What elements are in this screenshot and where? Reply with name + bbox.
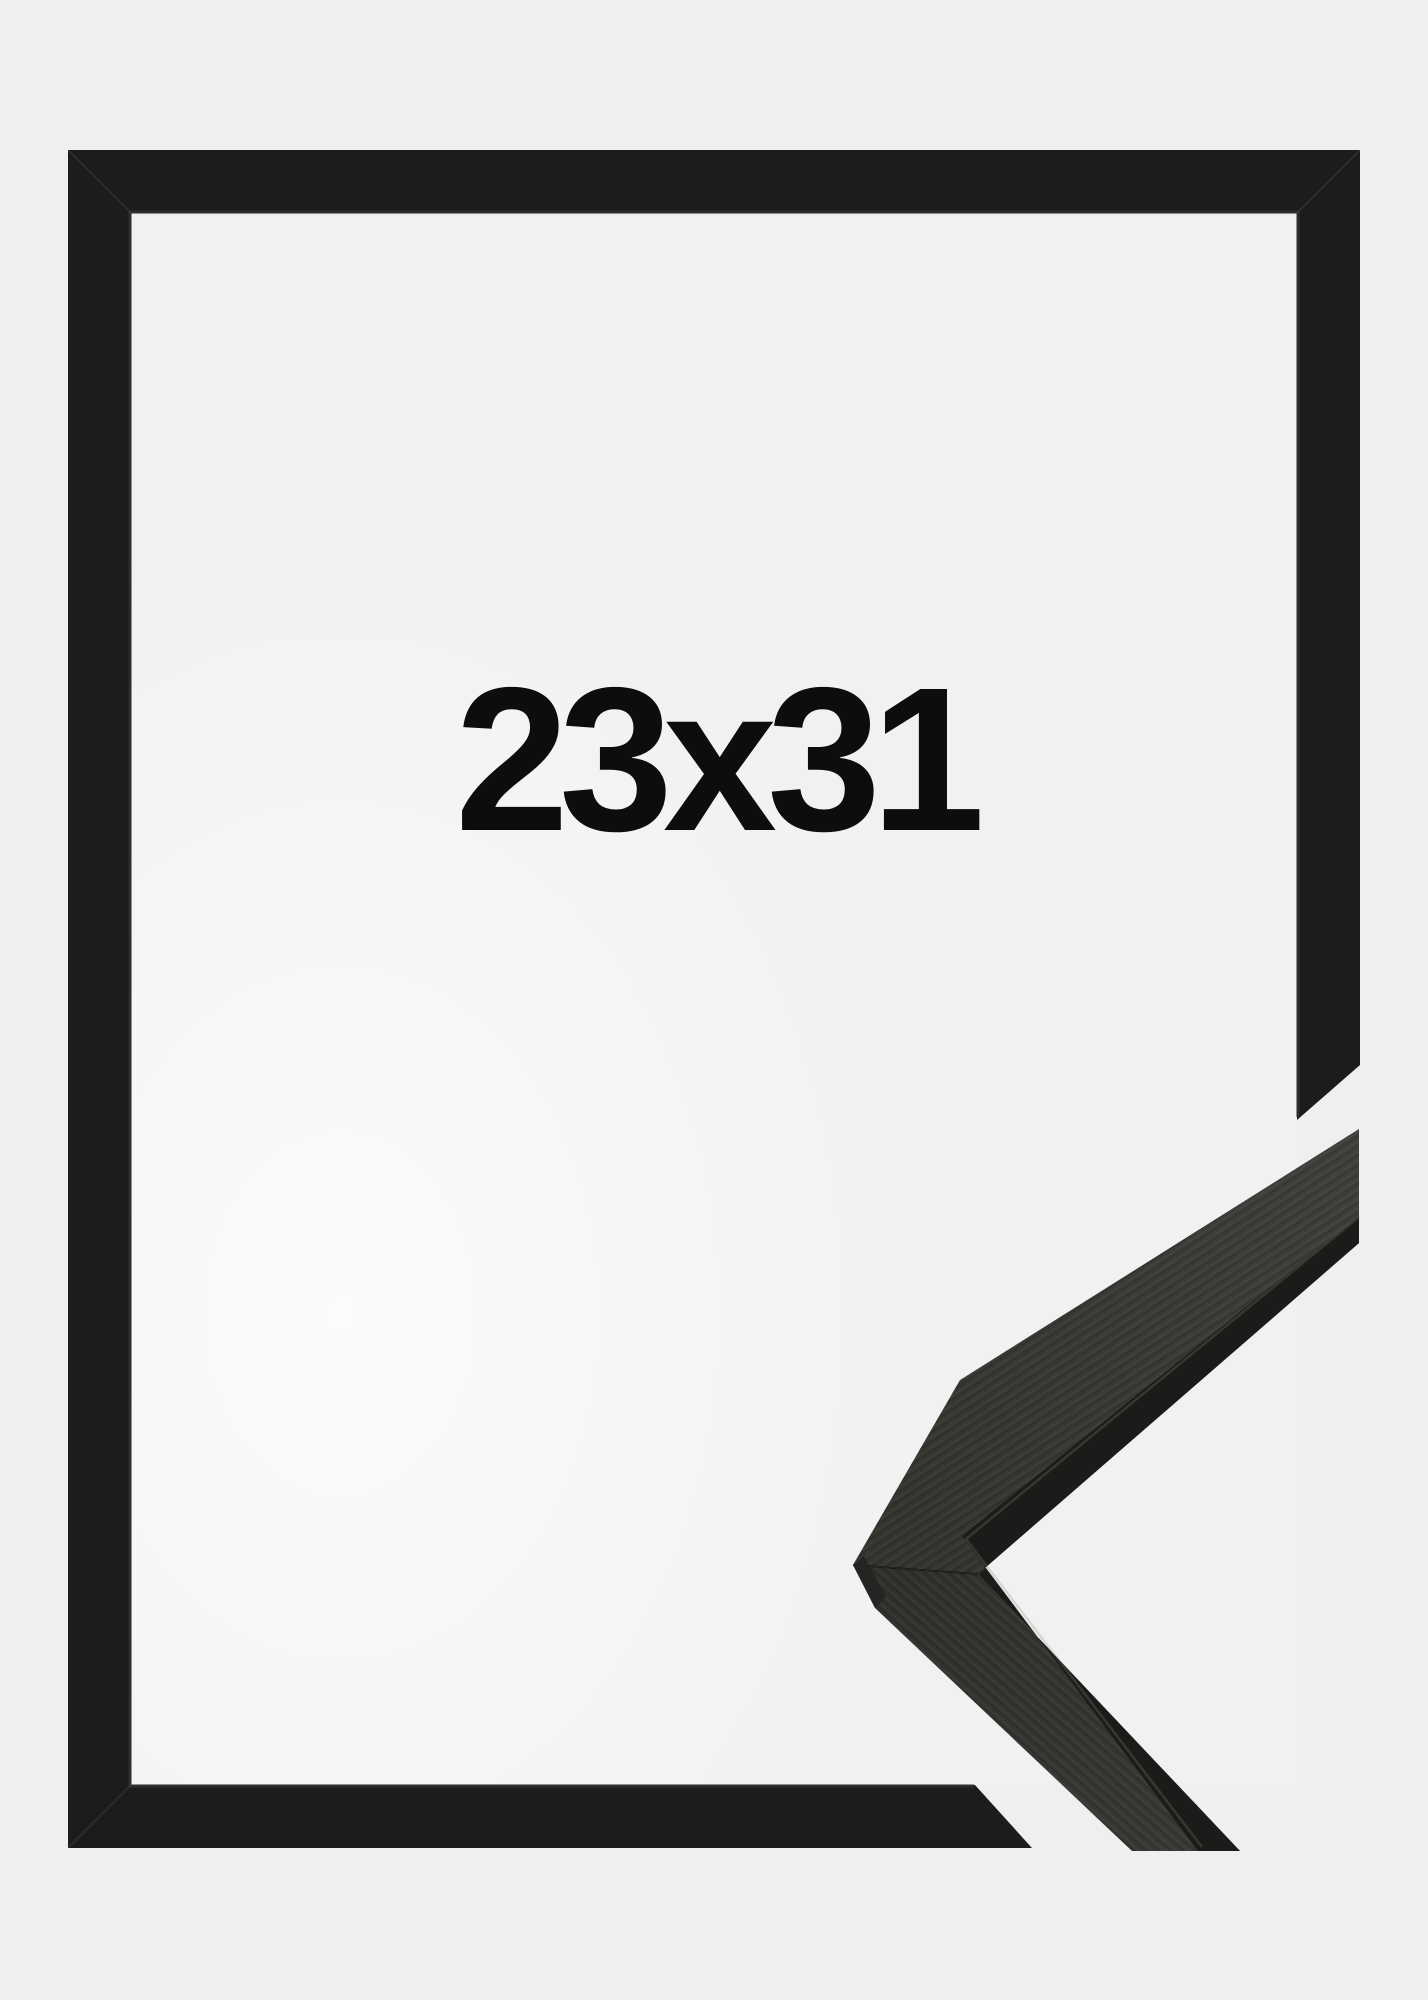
framed-product-image: 23x31 <box>0 0 1428 2000</box>
frame-interior-sheet <box>131 213 1297 1785</box>
product-photo-canvas: 23x31 <box>0 0 1428 2000</box>
size-label: 23x31 <box>455 645 980 874</box>
